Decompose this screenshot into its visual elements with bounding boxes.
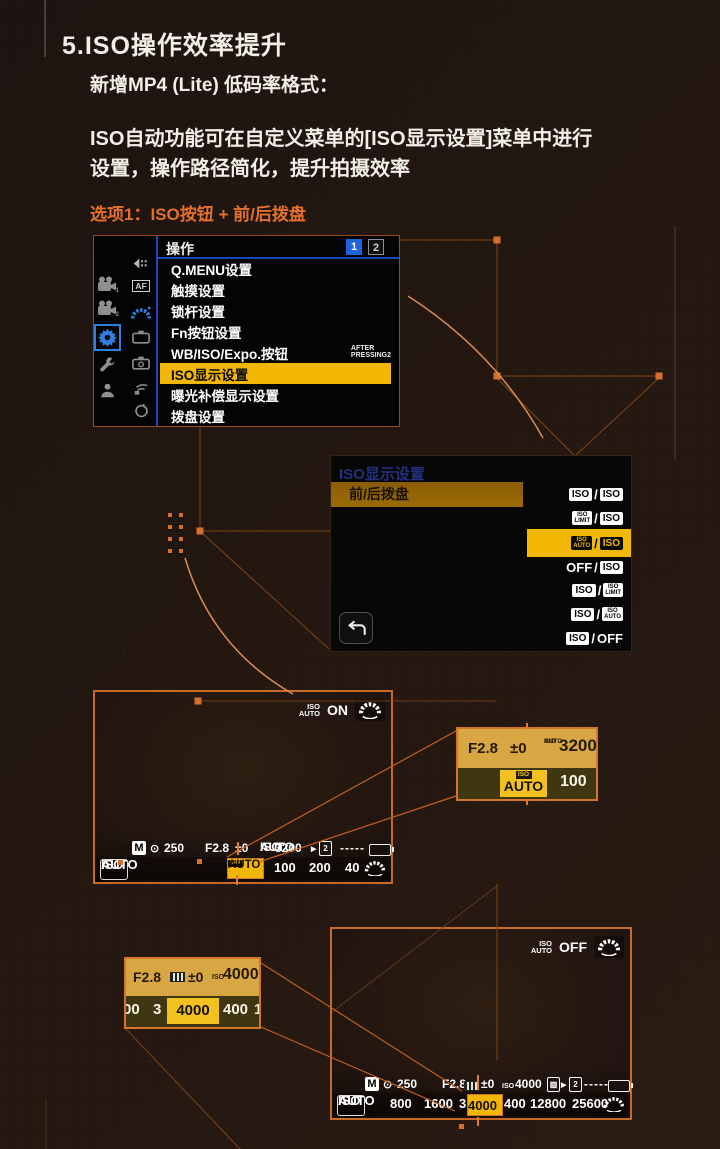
- front-dial-badge: ISO: [569, 488, 592, 501]
- iso-screen-title: ISO显示设置: [339, 463, 425, 484]
- iso-option: 100: [274, 860, 296, 875]
- rear-dial-icon: [603, 1095, 625, 1112]
- iso-option: 1600: [424, 1096, 453, 1111]
- option-iso-isolimit[interactable]: ISO/ISOLIMIT: [527, 580, 631, 600]
- menu-item-lock-lever[interactable]: 锁杆设置: [158, 301, 399, 322]
- menu-item-qmenu[interactable]: Q.MENU设置: [158, 259, 399, 280]
- liveview-iso-auto-off-screenshot: ISOAUTO OFF M ⊙ 250 F2.8 ±0 ISO 4000 ▨ ▶…: [330, 927, 632, 1120]
- front-rear-dial-row[interactable]: 前/后拨盘: [331, 482, 523, 507]
- selected-iso: 4000: [468, 1095, 497, 1116]
- iso-value: 4000: [223, 966, 259, 984]
- ev-value: ±0: [481, 1077, 494, 1091]
- iso-option: 200: [309, 860, 331, 875]
- iso-auto-selected-box: ISO AUTO: [500, 770, 547, 797]
- wrench-icon[interactable]: [94, 356, 120, 373]
- write-card-icon: ▨: [547, 1077, 560, 1092]
- iso-value: 4000: [515, 1077, 542, 1091]
- front-dial-badge: ISOLIMIT: [572, 511, 592, 525]
- front-dial-badge: ISO: [571, 608, 594, 621]
- gear-icon[interactable]: [94, 328, 120, 347]
- front-dial-off: OFF: [566, 560, 592, 575]
- iso-value: 3200: [559, 736, 597, 756]
- iso-auto-state: OFF: [559, 939, 587, 955]
- menu-item-fn-button[interactable]: Fn按钮设置: [158, 322, 399, 343]
- iso-option: 100: [560, 773, 587, 791]
- tab-1[interactable]: 1: [346, 239, 362, 255]
- iso-option: 3: [459, 1096, 466, 1111]
- iso-display-setting-screenshot: ISO显示设置 前/后拨盘 ISO/ISO ISOLIMIT/ISO ISOAU…: [330, 455, 632, 652]
- front-dial-badge: ISO: [566, 632, 589, 645]
- back-arrow-icon: [344, 619, 368, 638]
- option-iso-off[interactable]: ISO/OFF: [527, 628, 631, 648]
- rear-dial-off: OFF: [597, 631, 623, 646]
- iso-option: 40: [345, 860, 359, 875]
- camera-2-icon[interactable]: [128, 356, 154, 370]
- option-off-iso[interactable]: OFF/ISO: [527, 557, 631, 577]
- iso-option-cut: 00: [124, 1001, 140, 1018]
- front-dial-icon: [355, 699, 385, 721]
- iso-option: 400: [504, 1096, 526, 1111]
- counter-dashes: -----: [340, 841, 365, 855]
- menu-item-label: WB/ISO/Expo.按钮: [171, 343, 288, 363]
- iso-auto-label: ISOAUTO: [531, 940, 552, 955]
- camera-1-icon[interactable]: [128, 330, 154, 344]
- menu-item-touch[interactable]: 触摸设置: [158, 280, 399, 301]
- card-slot-badge: 2: [319, 841, 332, 856]
- menu-item-iso-display[interactable]: ISO显示设置: [160, 363, 391, 384]
- rear-dial-badge: ISOLIMIT: [603, 583, 623, 597]
- video-camera-2-icon[interactable]: 2: [94, 300, 120, 316]
- shutter-value: 250: [397, 1077, 417, 1091]
- counter-dashes: -----: [584, 1077, 609, 1091]
- iso-option-cut: 1: [254, 1001, 261, 1018]
- clock-icon[interactable]: [128, 403, 154, 418]
- ev-value: ±0: [510, 740, 527, 757]
- back-arrow-icon[interactable]: [128, 257, 154, 270]
- zoom-inset-iso-4000: F2.8 ±0 ISO 4000 00 3 4000 400 1: [124, 957, 261, 1029]
- menu-item-wb-iso-expo[interactable]: WB/ISO/Expo.按钮 AFTERPRESSING2: [158, 343, 399, 364]
- iso-prefix: ISO: [502, 1083, 514, 1090]
- menu-list: Q.MENU设置 触摸设置 锁杆设置 Fn按钮设置 WB/ISO/Expo.按钮…: [158, 259, 399, 426]
- selected-iso: AUTO: [228, 859, 260, 871]
- aperture-value: F2.8: [468, 740, 498, 757]
- camera-menu-screenshot: 1 2 AF 操作 1 2 Q.MENU设置: [93, 235, 400, 427]
- exposure-meter-icon: [170, 972, 185, 982]
- iso-selected-box[interactable]: 4000: [467, 1094, 503, 1116]
- ev-value: ±0: [188, 969, 203, 985]
- card-arrow-icon: ▶: [311, 845, 316, 853]
- ev-value: ±0: [235, 841, 248, 855]
- iso-auto-selected-box[interactable]: ISO AUTO: [227, 858, 264, 879]
- person-icon[interactable]: [94, 382, 120, 399]
- aperture-value: F2.8: [442, 1077, 466, 1091]
- iso-option: 400: [223, 1001, 248, 1018]
- battery-icon: [369, 844, 391, 856]
- section-title: 5.ISO操作效率提升: [62, 26, 287, 62]
- mode-badge: M: [132, 841, 146, 855]
- af-area-icon[interactable]: AF: [128, 281, 154, 291]
- rear-dial-badge: ISOAUTO: [602, 607, 623, 621]
- card-slot-badge: 2: [569, 1077, 582, 1092]
- iso-option: 3: [153, 1001, 161, 1018]
- option-title: 选项1：ISO按钮 + 前/后拨盘: [90, 200, 306, 225]
- iso-value: 3200: [275, 841, 302, 855]
- aperture-value: F2.8: [205, 841, 229, 855]
- mode-badge: M: [365, 1077, 379, 1091]
- promo-page: 5.ISO操作效率提升 新增MP4 (Lite) 低码率格式： ISO自动功能可…: [0, 0, 720, 1149]
- menu-item-dial[interactable]: 拨盘设置: [158, 405, 399, 426]
- aperture-value: F2.8: [133, 969, 161, 985]
- iso-auto-badge: ISOAUTO: [100, 859, 128, 880]
- iso-selected-box: 4000: [167, 998, 219, 1024]
- iso-option: 12800: [530, 1096, 566, 1111]
- rear-dial-badge: ISO: [600, 512, 623, 525]
- card-arrow-icon: ▶: [561, 1081, 566, 1089]
- body-text: ISO自动功能可在自定义菜单的[ISO显示设置]菜单中进行 设置，操作路径简化，…: [90, 124, 670, 184]
- body-line-2: 设置，操作路径简化，提升拍摄效率: [90, 154, 670, 184]
- option-isolimit-iso[interactable]: ISOLIMIT/ISO: [527, 508, 631, 528]
- exposure-meter-icon: [464, 1081, 479, 1091]
- rear-dial-badge: ISO: [600, 537, 623, 550]
- option-iso-iso[interactable]: ISO/ISO: [527, 484, 631, 504]
- shutter-value: 250: [164, 841, 184, 855]
- wireless-icon[interactable]: [128, 380, 154, 395]
- iso-auto-label: ISOAUTO: [299, 703, 320, 718]
- menu-title: 操作: [166, 239, 194, 259]
- option-isoauto-iso-selected[interactable]: ISOAUTO/ISO: [527, 533, 631, 553]
- back-button[interactable]: [339, 612, 373, 644]
- selected-iso: AUTO: [500, 779, 547, 794]
- selected-iso: 4000: [167, 998, 219, 1024]
- metering-icon: ⊙: [383, 1078, 392, 1091]
- menu-item-exposure-comp[interactable]: 曝光补偿显示设置: [158, 384, 399, 405]
- zoom-inset-iso-auto: F2.8 ±0 ISOAUTO 3200 ISO AUTO 100: [456, 727, 598, 801]
- battery-icon: [608, 1080, 630, 1092]
- iso-auto-state: ON: [327, 702, 348, 718]
- liveview-iso-auto-on-screenshot: ISOAUTO ON M ⊙ 250 F2.8 ±0 ISOAUTO 3200 …: [93, 690, 393, 884]
- body-line-1: ISO自动功能可在自定义菜单的[ISO显示设置]菜单中进行: [90, 124, 670, 154]
- metering-icon: ⊙: [150, 842, 159, 855]
- option-iso-isoauto[interactable]: ISO/ISOAUTO: [527, 604, 631, 624]
- rear-dial-badge: ISO: [600, 488, 623, 501]
- tab-2[interactable]: 2: [368, 239, 384, 255]
- front-dial-icon: [594, 936, 624, 958]
- front-dial-badge: ISO: [572, 584, 595, 597]
- front-dial-icon[interactable]: [128, 306, 154, 320]
- front-dial-badge: ISOAUTO: [571, 536, 592, 550]
- video-camera-1-icon[interactable]: 1: [94, 276, 120, 292]
- iso-option: 800: [390, 1096, 412, 1111]
- rear-dial-icon: [364, 859, 386, 876]
- iso-auto-badge: ISOAUTO: [337, 1095, 365, 1116]
- rear-dial-badge: ISO: [600, 561, 623, 574]
- after-pressing-note: AFTERPRESSING2: [351, 345, 391, 360]
- subtitle: 新增MP4 (Lite) 低码率格式：: [90, 70, 338, 97]
